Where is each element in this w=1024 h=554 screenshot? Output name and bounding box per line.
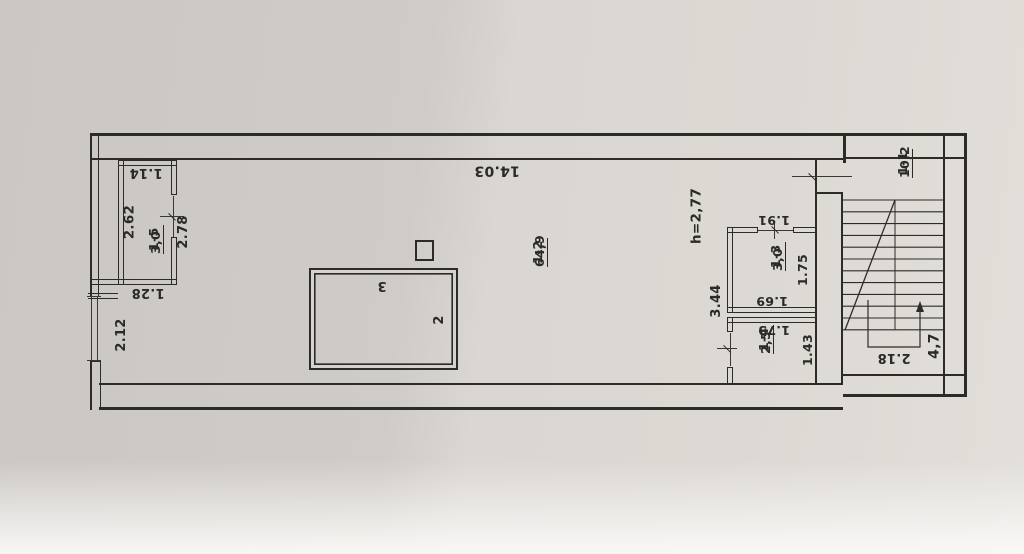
room-area: 2,5 bbox=[757, 331, 773, 354]
stair-treads bbox=[843, 200, 943, 330]
dim-room13-depth: 1.75 bbox=[796, 254, 810, 286]
room-area: 10,2 bbox=[896, 146, 912, 178]
wall-bottom bbox=[99, 383, 843, 410]
stair-wall-right bbox=[943, 133, 967, 397]
stair-wall-bottom bbox=[843, 374, 967, 397]
floor-plan-drawing: 1.14 2.62 2.78 1.28 2.12 14.03 h=2,77 1.… bbox=[0, 0, 1024, 554]
height-note: h=2,77 bbox=[690, 188, 705, 244]
room14-door-leaf bbox=[730, 333, 731, 366]
dim-room13-door: 1.91 bbox=[758, 213, 790, 227]
dim-room15-door: 2.78 bbox=[177, 215, 191, 248]
room14-wall-left-lower bbox=[727, 367, 733, 385]
dim-window-left: 2.12 bbox=[115, 318, 129, 351]
veranda-marker-3: 3 bbox=[377, 278, 386, 292]
room-area: 3,0 bbox=[769, 248, 785, 271]
room13-wall-left bbox=[727, 227, 733, 313]
column-square bbox=[415, 240, 434, 261]
wall-left bbox=[90, 133, 99, 296]
veranda-marker-2: 2 bbox=[433, 315, 447, 324]
room15-step-wall bbox=[88, 293, 118, 299]
stair-door-dim-tick bbox=[792, 176, 818, 177]
wall-top bbox=[90, 133, 845, 160]
dim-room13-width: 1.69 bbox=[756, 294, 788, 308]
room13-wall-top-right bbox=[793, 227, 815, 233]
wall-corner-bottom-left bbox=[90, 361, 101, 410]
stair-direction-path bbox=[868, 300, 920, 347]
photo-of-floor-plan: 1.14 2.62 2.78 1.28 2.12 14.03 h=2,77 1.… bbox=[0, 0, 1024, 554]
window-left bbox=[91, 296, 98, 361]
dim-room14-depth: 1.43 bbox=[801, 334, 815, 366]
dim-partition-length: 3.44 bbox=[710, 284, 724, 317]
room13-wall-top-left bbox=[727, 227, 758, 233]
dim-room15-length: 2.62 bbox=[123, 205, 138, 240]
room-area: 3,0 bbox=[147, 231, 163, 254]
dim-room15-width: 1.14 bbox=[129, 165, 162, 179]
dim-stair-length: 4,7 bbox=[927, 333, 942, 359]
stair-break-line bbox=[845, 200, 895, 330]
dim-hall-length: 14.03 bbox=[474, 162, 520, 177]
room14-wall-left-upper bbox=[727, 317, 733, 332]
dim-room15-offset: 1.28 bbox=[131, 285, 164, 299]
dim-stair-width: 2.18 bbox=[877, 350, 910, 364]
room-area: 64,9 bbox=[531, 235, 547, 267]
room15-wall-right-upper bbox=[171, 160, 177, 195]
wall-right-lower bbox=[815, 193, 843, 385]
